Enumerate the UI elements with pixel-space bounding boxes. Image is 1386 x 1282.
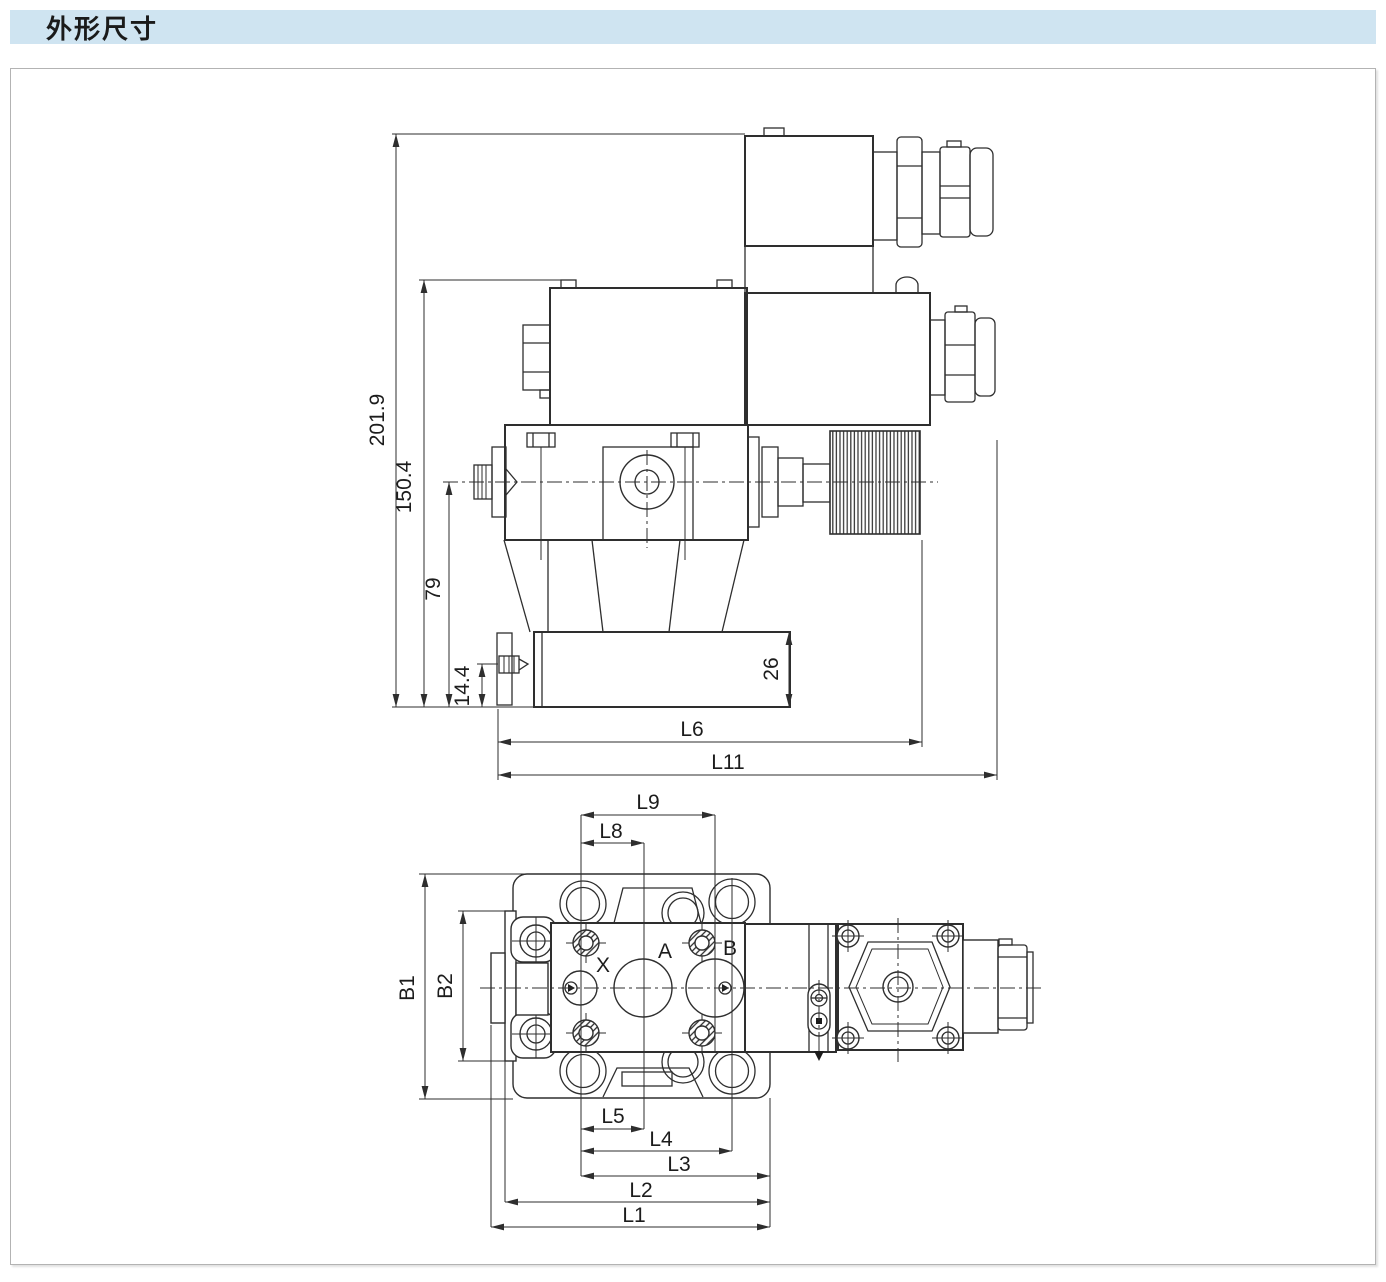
dim-centerline-height-label: 79 bbox=[422, 577, 445, 600]
base-plate bbox=[534, 632, 790, 707]
dim-l6-label: L6 bbox=[680, 718, 703, 741]
dim-overall-height-label: 201.9 bbox=[366, 394, 389, 447]
port-a-label: A bbox=[658, 940, 672, 963]
dim-l8-label: L8 bbox=[599, 820, 622, 843]
cable-connector-top bbox=[873, 137, 993, 247]
dim-b2-label: B2 bbox=[434, 973, 457, 999]
proportional-solenoid bbox=[745, 293, 930, 425]
dim-l9-label: L9 bbox=[636, 791, 659, 814]
dimension-drawing: 201.9 150.4 79 14.4 26 L6 L11 bbox=[0, 0, 1386, 1282]
solenoid-tube bbox=[963, 940, 998, 1033]
coil-nut bbox=[523, 325, 550, 398]
port-b-label: B bbox=[723, 937, 737, 960]
side-view-drawing: 201.9 150.4 79 14.4 26 L6 L11 bbox=[366, 128, 997, 780]
dim-l11-label: L11 bbox=[711, 751, 744, 774]
dim-b1-label: B1 bbox=[396, 975, 419, 1001]
drain-arrow-icon bbox=[814, 1051, 824, 1061]
dim-base-thickness-label: 26 bbox=[760, 657, 783, 680]
dim-foot-bolt-height-label: 14.4 bbox=[451, 665, 474, 706]
vent-screw bbox=[896, 277, 918, 293]
cable-connector-mid bbox=[930, 306, 995, 402]
dim-coil-height-label: 150.4 bbox=[393, 460, 416, 513]
terminal-box bbox=[745, 136, 873, 246]
dim-l1-label: L1 bbox=[622, 1204, 645, 1227]
dim-l3-label: L3 bbox=[667, 1153, 690, 1176]
dim-l5-label: L5 bbox=[601, 1105, 624, 1128]
top-view-drawing: X A B bbox=[396, 791, 1045, 1227]
pilot-coil bbox=[550, 288, 747, 425]
port-x-label: X bbox=[596, 954, 610, 977]
dim-l2-label: L2 bbox=[629, 1179, 652, 1202]
end-plug-lower bbox=[497, 633, 528, 705]
cable-connector-topview bbox=[998, 939, 1033, 1030]
dim-l4-label: L4 bbox=[649, 1128, 673, 1151]
